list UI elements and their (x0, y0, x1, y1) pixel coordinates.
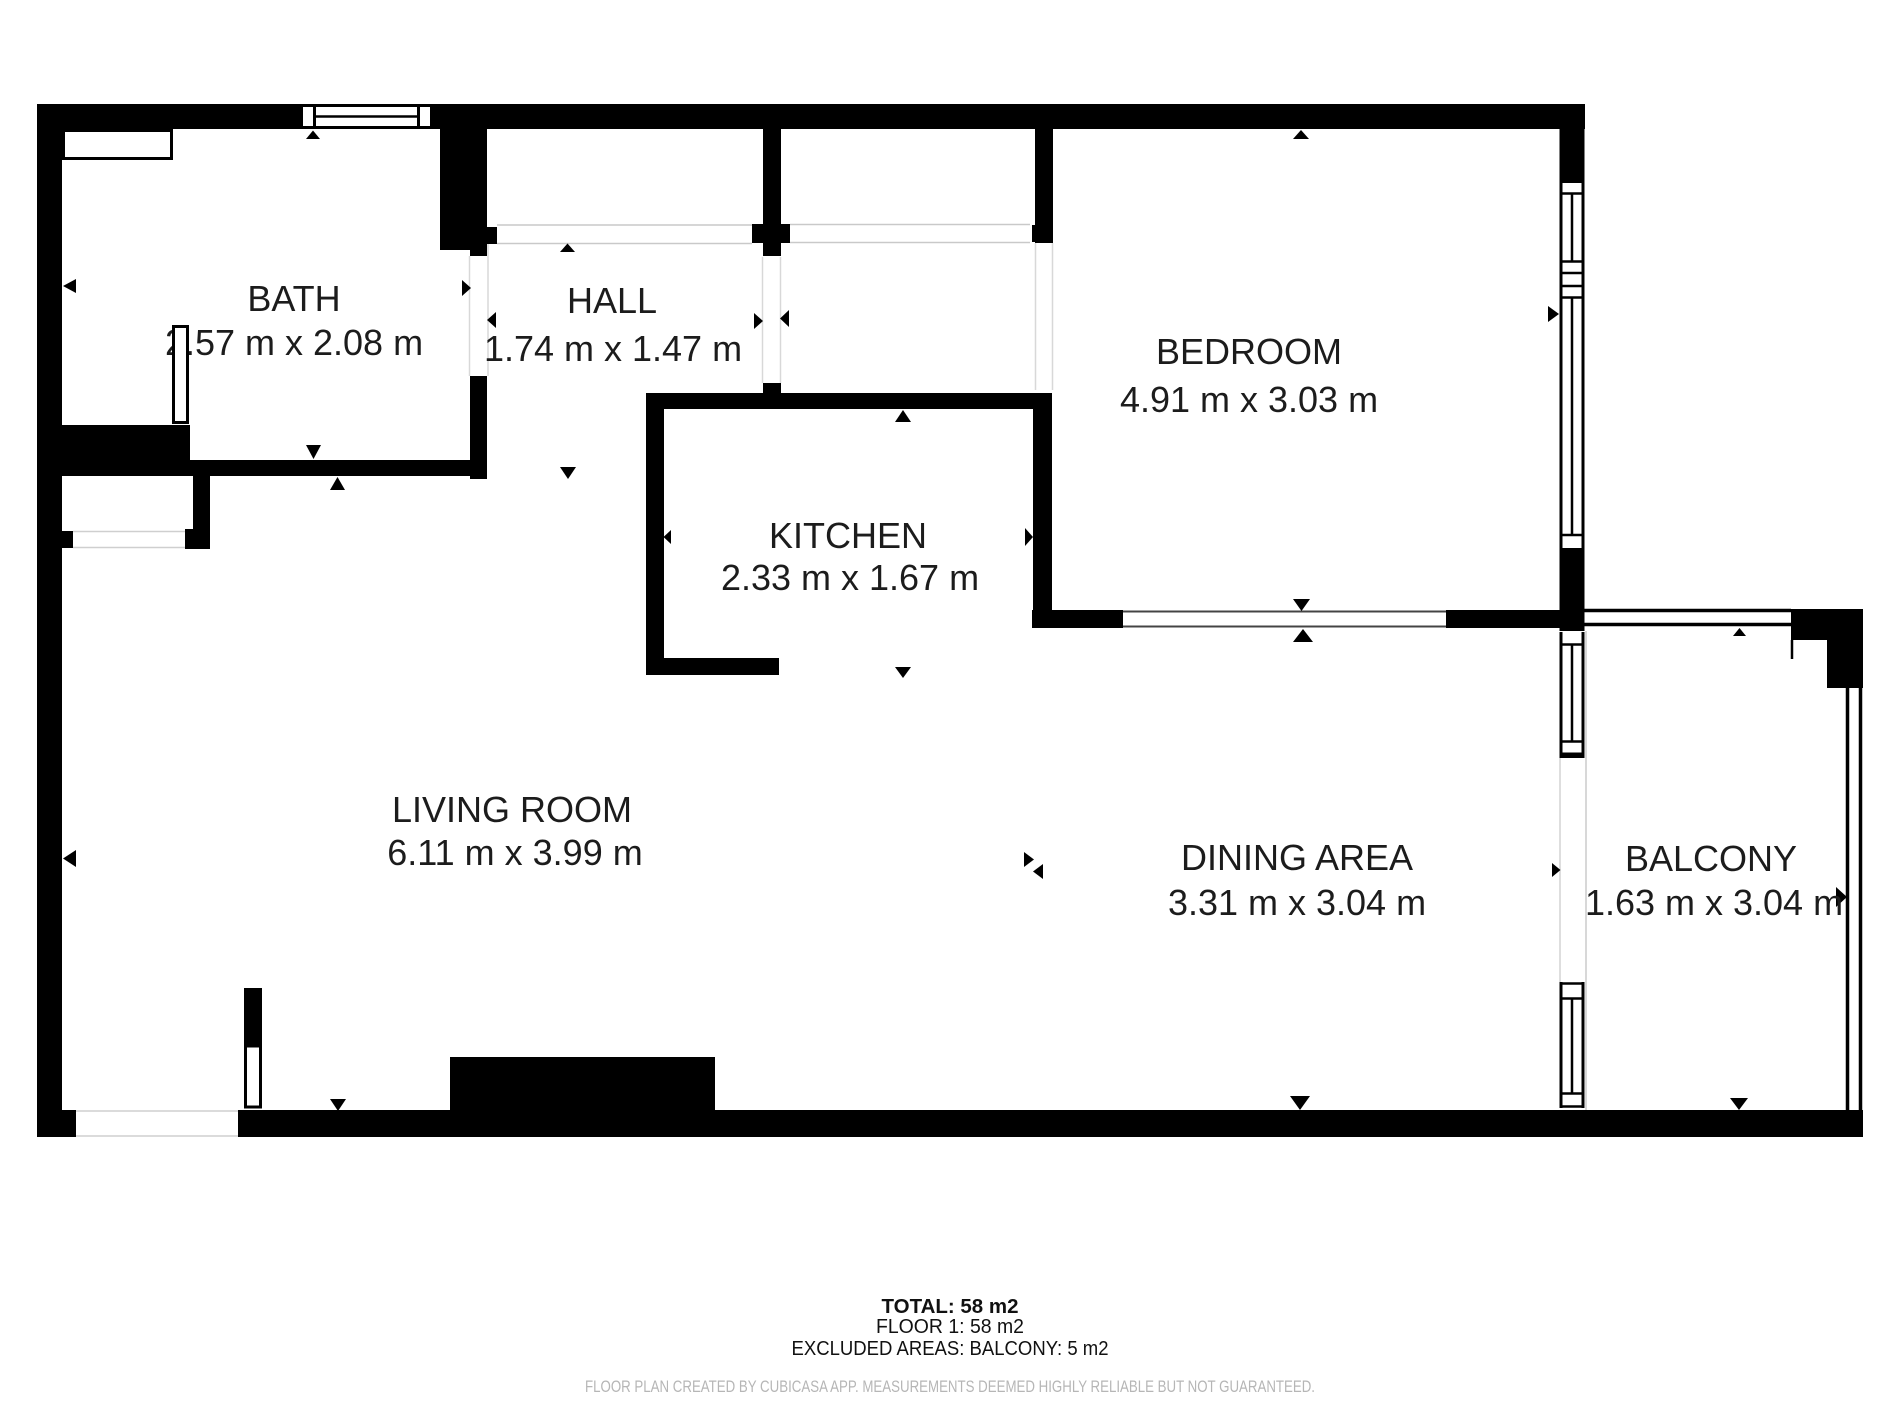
svg-text:3.31 m x 3.04 m: 3.31 m x 3.04 m (1168, 882, 1426, 923)
svg-text:4.91 m x 3.03 m: 4.91 m x 3.03 m (1120, 379, 1378, 420)
svg-text:FLOOR 1: 58 m2: FLOOR 1: 58 m2 (876, 1315, 1024, 1338)
svg-text:EXCLUDED AREAS: BALCONY: 5 m2: EXCLUDED AREAS: BALCONY: 5 m2 (792, 1337, 1109, 1360)
svg-text:KITCHEN: KITCHEN (769, 515, 927, 556)
svg-text:HALL: HALL (567, 280, 657, 321)
svg-text:BATH: BATH (247, 278, 340, 319)
svg-text:1.63 m x 3.04 m: 1.63 m x 3.04 m (1585, 882, 1843, 923)
svg-text:2.57 m x 2.08 m: 2.57 m x 2.08 m (165, 322, 423, 363)
svg-text:BEDROOM: BEDROOM (1156, 331, 1342, 372)
svg-text:BALCONY: BALCONY (1625, 838, 1797, 879)
svg-text:DINING AREA: DINING AREA (1181, 837, 1413, 878)
svg-text:6.11 m x 3.99 m: 6.11 m x 3.99 m (387, 832, 642, 873)
svg-text:LIVING ROOM: LIVING ROOM (392, 789, 632, 830)
svg-text:FLOOR PLAN CREATED BY CUBICASA: FLOOR PLAN CREATED BY CUBICASA APP. MEAS… (585, 1378, 1315, 1396)
svg-text:1.74 m x 1.47 m: 1.74 m x 1.47 m (484, 328, 742, 369)
svg-text:2.33 m x 1.67 m: 2.33 m x 1.67 m (721, 557, 979, 598)
